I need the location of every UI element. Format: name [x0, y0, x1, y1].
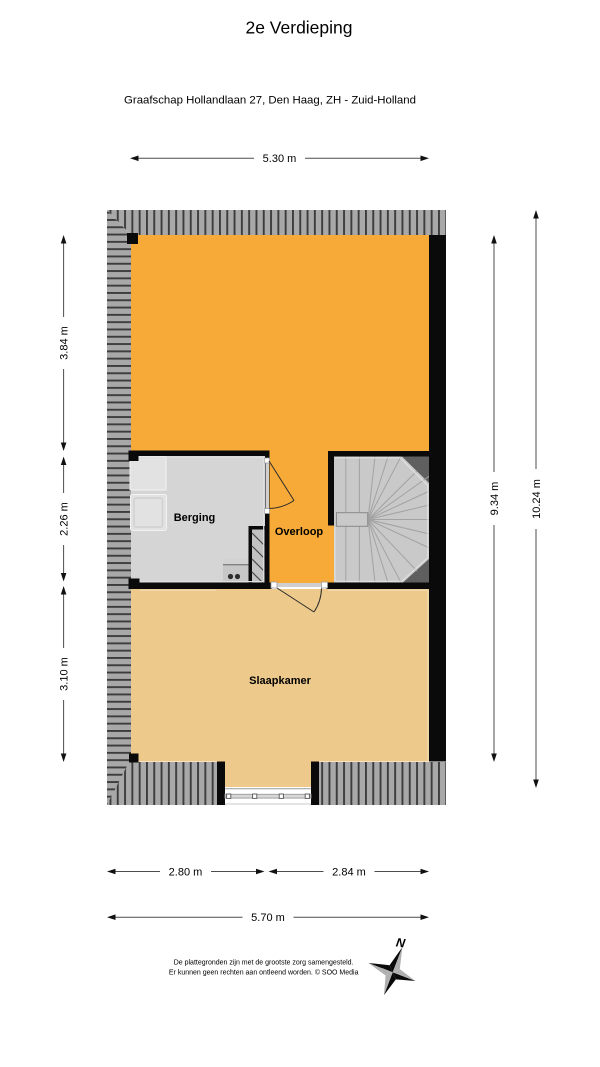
svg-text:9.34 m: 9.34 m	[489, 482, 501, 516]
svg-text:2.84 m: 2.84 m	[332, 866, 366, 878]
svg-text:10.24 m: 10.24 m	[531, 479, 543, 519]
svg-text:2.26 m: 2.26 m	[59, 502, 71, 536]
svg-text:5.30 m: 5.30 m	[263, 153, 297, 165]
svg-text:Graafschap Hollandlaan 27, Den: Graafschap Hollandlaan 27, Den Haag, ZH …	[124, 95, 416, 107]
svg-text:Berging: Berging	[174, 512, 216, 524]
svg-text:Er kunnen geen rechten aan ont: Er kunnen geen rechten aan ontleend word…	[169, 969, 359, 977]
svg-text:Overloop: Overloop	[275, 526, 324, 538]
svg-text:2.80 m: 2.80 m	[169, 866, 203, 878]
svg-text:3.10 m: 3.10 m	[59, 657, 71, 691]
svg-text:5.70 m: 5.70 m	[251, 912, 285, 924]
svg-text:Slaapkamer: Slaapkamer	[249, 675, 311, 687]
svg-text:2e Verdieping: 2e Verdieping	[245, 18, 352, 38]
svg-text:3.84 m: 3.84 m	[59, 326, 71, 360]
svg-text:De plattegronden zijn met de g: De plattegronden zijn met de grootste zo…	[174, 960, 354, 967]
